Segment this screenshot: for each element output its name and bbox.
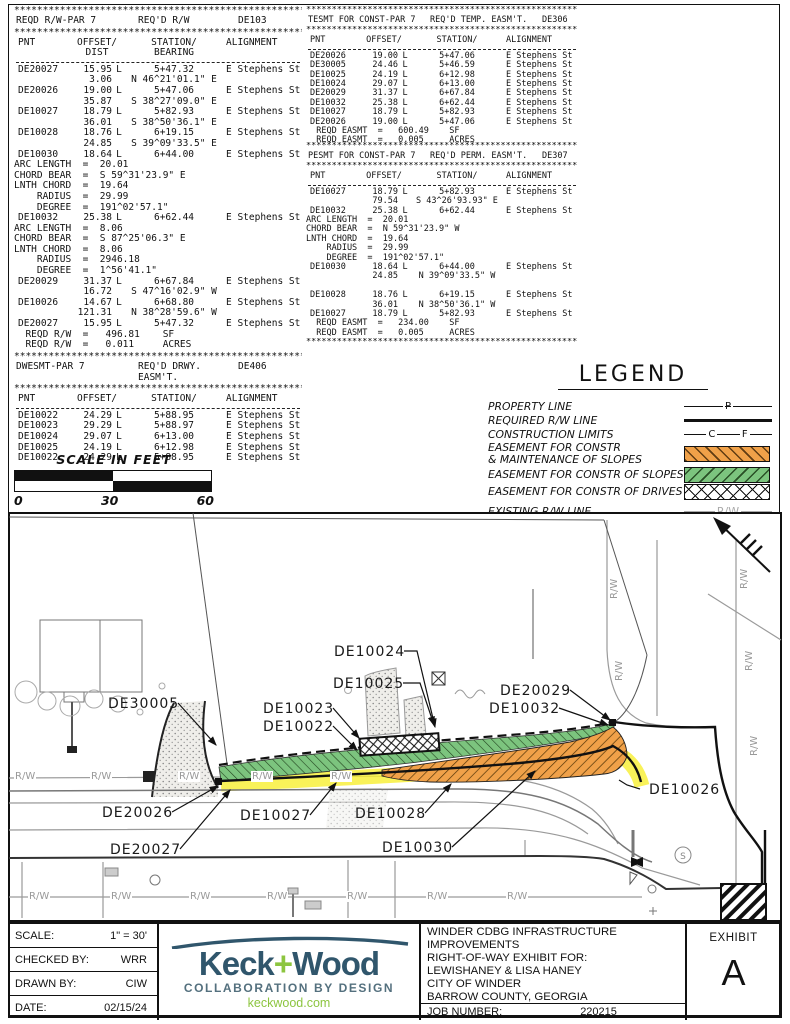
job-number-row: JOB NUMBER: 220215 — [421, 1003, 685, 1020]
scale-tick-60: 60 — [197, 493, 214, 508]
legend-item: EASEMENT FOR CONSTR OF DRIVES — [488, 484, 778, 500]
plan-point-label: DE20026 — [102, 805, 173, 821]
rw-annotation: R/W — [739, 568, 750, 590]
scale-row: SCALE: 1" = 30' — [10, 924, 157, 948]
legend-item: EASEMENT FOR CONSTR OF SLOPES — [488, 467, 778, 483]
logo-url: keckwood.com — [248, 996, 331, 1010]
table-note-row: REQD EASMT = 0.005 ACRES — [306, 329, 578, 338]
plan-point-label: DE30005 — [108, 696, 179, 712]
separator: ****************************************… — [14, 28, 302, 37]
legend-item-label: EASEMENT FOR CONSTR OF SLOPES — [488, 469, 684, 481]
rw-annotation: R/W — [330, 771, 352, 782]
table-note-row: RADIUS = 29.99 — [14, 192, 302, 203]
table-row: DE1002429.07L6+13.00E Stephens St — [14, 432, 302, 443]
scale-bar-graphic — [14, 470, 212, 492]
table-required-rw: ****************************************… — [14, 6, 302, 351]
table-row: 24.85S 39^09'33.5" E — [14, 139, 302, 150]
legend-item: REQUIRED R/W LINE — [488, 414, 778, 427]
drawing-info: SCALE: 1" = 30' CHECKED BY: WRR DRAWN BY… — [10, 924, 159, 1020]
plan-point-label: DE10023 — [263, 701, 334, 717]
company-logo: Keck+Wood COLLABORATION BY DESIGN keckwo… — [159, 924, 421, 1020]
plan-point-label: DE10024 — [334, 644, 405, 660]
table-header: PNTOFFSET/ DISTSTATION/ BEARINGALIGNMENT — [14, 38, 302, 59]
separator: ****************************************… — [306, 26, 578, 35]
legend-item-label: CONSTRUCTION LIMITS — [488, 429, 684, 441]
table-title: REQD R/W-PAR 7REQ'D R/WDE103 — [14, 15, 302, 28]
plan-point-label: DE20027 — [110, 842, 181, 858]
separator: ****************************************… — [306, 162, 578, 171]
logo-word-wood: Wood — [292, 945, 379, 982]
separator: ****************************************… — [306, 142, 578, 151]
legend-item-label: REQUIRED R/W LINE — [488, 415, 684, 427]
rw-annotation: R/W — [28, 891, 50, 902]
plan-point-label: DE10025 — [333, 676, 404, 692]
legend-item: PROPERTY LINEP — [488, 400, 778, 413]
plan-point-label: DE10022 — [263, 719, 334, 735]
plan-point-label: DE10028 — [355, 806, 426, 822]
project-info: WINDER CDBG INFRASTRUCTURE IMPROVEMENTS … — [421, 924, 687, 1020]
table-perm-easement: ****************************************… — [306, 142, 578, 347]
row-exhibit-sheet: ****************************************… — [0, 0, 790, 1024]
logo-tagline: COLLABORATION BY DESIGN — [184, 981, 394, 995]
rw-annotation: R/W — [346, 891, 368, 902]
exhibit-label: EXHIBIT — [709, 932, 757, 944]
plan-linework: S — [8, 512, 782, 922]
scale-tick-0: 0 — [14, 493, 23, 508]
table-row: DE2002619.00L5+47.06E Stephens St — [14, 86, 302, 97]
date-row: DATE: 02/15/24 — [10, 996, 157, 1020]
plan-point-label: DE10026 — [649, 782, 720, 798]
rw-annotation: R/W — [110, 891, 132, 902]
logo-plus-icon: + — [274, 945, 292, 982]
title-block: SCALE: 1" = 30' CHECKED BY: WRR DRAWN BY… — [8, 922, 782, 1018]
legend-item-symbol — [684, 419, 772, 422]
separator: ****************************************… — [14, 6, 302, 15]
legend-item-label: EASEMENT FOR CONSTR & MAINTENANCE OF SLO… — [488, 442, 684, 466]
rw-annotation: R/W — [426, 891, 448, 902]
scale-bar: SCALE IN FEET 0 30 60 — [14, 452, 214, 508]
separator: ****************************************… — [14, 352, 302, 361]
plan-point-label: DE10030 — [382, 840, 453, 856]
exhibit-cell: EXHIBIT A — [687, 924, 780, 1020]
table-temp-easement: ****************************************… — [306, 6, 578, 146]
table-header: PNTOFFSET/STATION/ALIGNMENT — [306, 36, 578, 45]
plan-point-label: DE20029 — [500, 683, 571, 699]
legend-item-symbol: P — [684, 401, 772, 412]
table-title: TESMT FOR CONST-PAR 7REQ'D TEMP. EASM'T.… — [306, 15, 578, 26]
logo-word-keck: Keck — [199, 945, 274, 982]
legend: LEGEND PROPERTY LINEPREQUIRED R/W LINECO… — [488, 362, 778, 519]
legend-item-symbol — [684, 484, 772, 500]
legend-item-label: PROPERTY LINE — [488, 401, 684, 413]
drawn-by-row: DRAWN BY: CIW — [10, 972, 157, 996]
rw-annotation: R/W — [614, 660, 625, 682]
table-header: PNTOFFSET/STATION/ALIGNMENT — [306, 172, 578, 181]
plan-view: S — [8, 512, 782, 922]
legend-item-symbol — [684, 467, 772, 483]
legend-item-symbol: CF — [684, 429, 772, 440]
legend-title: LEGEND — [558, 362, 708, 390]
table-title: DWESMT-PAR 7REQ'D DRWY. EASM'T.DE406 — [14, 361, 302, 384]
rw-annotation: R/W — [609, 578, 620, 600]
rw-annotation: R/W — [178, 771, 200, 782]
legend-item-symbol — [684, 446, 772, 462]
legend-items: PROPERTY LINEPREQUIRED R/W LINECONSTRUCT… — [488, 400, 778, 518]
scale-bar-title: SCALE IN FEET — [14, 452, 214, 467]
rw-annotation: R/W — [266, 891, 288, 902]
rw-annotation: R/W — [90, 771, 112, 782]
legend-item: CONSTRUCTION LIMITSCF — [488, 428, 778, 441]
separator: ****************************************… — [14, 384, 302, 393]
checked-by-row: CHECKED BY: WRR — [10, 948, 157, 972]
table-driveway-easement: ****************************************… — [14, 352, 302, 464]
table-title: PESMT FOR CONST-PAR 7REQ'D PERM. EASM'T.… — [306, 151, 578, 162]
rw-annotation: R/W — [189, 891, 211, 902]
table-row: 24.85N 39^09'33.5" W — [306, 272, 578, 281]
scale-tick-30: 30 — [101, 493, 118, 508]
table-note-row: REQD R/W = 0.011 ACRES — [14, 340, 302, 351]
exhibit-value: A — [721, 952, 745, 994]
rw-annotation: R/W — [506, 891, 528, 902]
separator: ****************************************… — [306, 338, 578, 347]
plan-point-label: DE10032 — [489, 701, 560, 717]
rw-annotation: R/W — [14, 771, 36, 782]
table-header: PNTOFFSET/STATION/ALIGNMENT — [14, 394, 302, 405]
separator: ****************************************… — [306, 6, 578, 15]
rw-annotation: R/W — [251, 771, 273, 782]
rw-annotation: R/W — [749, 735, 760, 757]
legend-item: EASEMENT FOR CONSTR & MAINTENANCE OF SLO… — [488, 442, 778, 466]
plan-point-label: DE10027 — [240, 808, 311, 824]
rw-annotation: R/W — [744, 650, 755, 672]
svg-text:S: S — [680, 852, 686, 862]
legend-item-label: EASEMENT FOR CONSTR OF DRIVES — [488, 486, 684, 498]
